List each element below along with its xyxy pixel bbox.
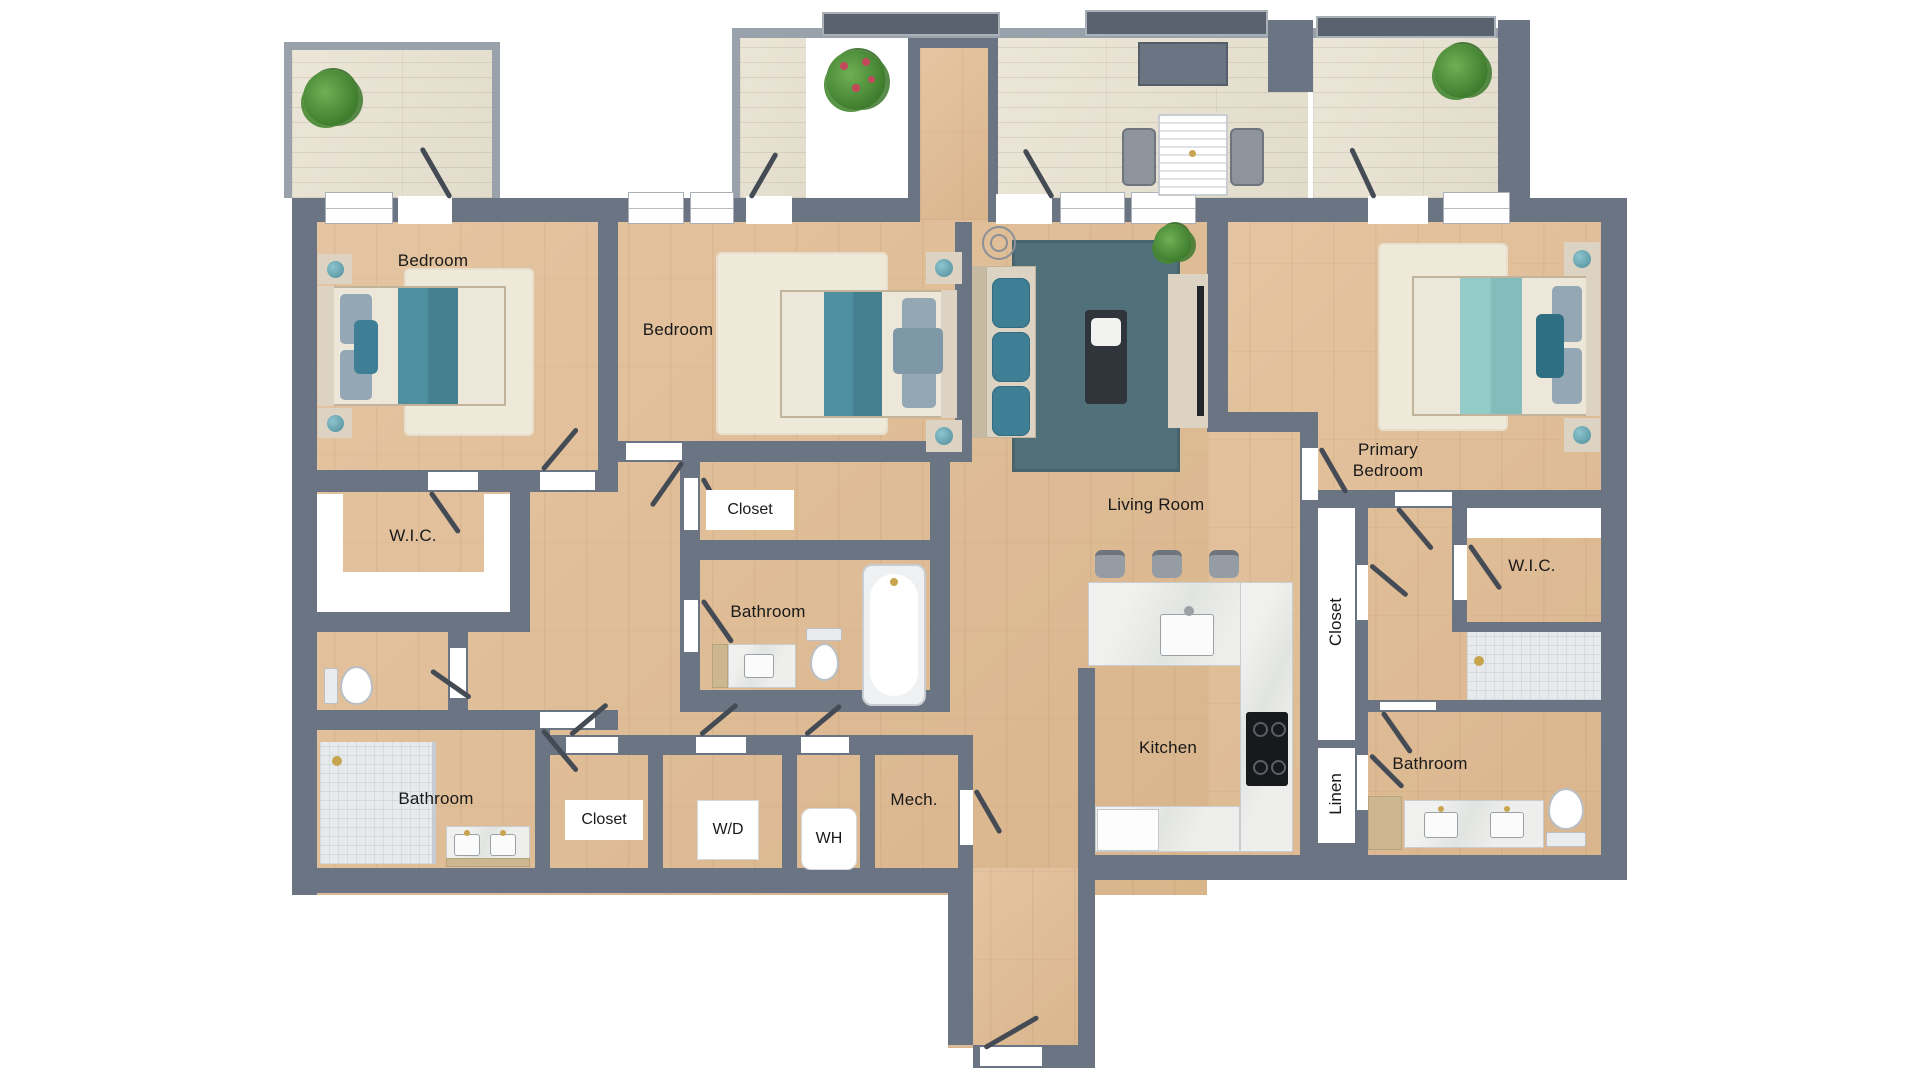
wall-outer-right	[1601, 198, 1627, 880]
water-heater-label: WH	[816, 830, 843, 848]
wall-wic-left-bottom	[317, 612, 510, 632]
wall-primary-bottom	[1318, 490, 1601, 508]
cooktop-burner-icon	[1253, 760, 1268, 775]
room-label-wic-left: W.I.C.	[389, 526, 436, 546]
wall-nook-left	[908, 44, 920, 202]
water-heater-box: WH	[801, 808, 857, 870]
bed-headboard	[1586, 276, 1600, 416]
flower-icon	[862, 58, 870, 66]
balcony-door-opening	[398, 196, 452, 224]
window	[1443, 192, 1510, 224]
flower-icon	[868, 76, 875, 83]
tv	[1197, 286, 1204, 416]
wall-utility-4	[860, 735, 875, 868]
wall-outer-left	[292, 198, 317, 895]
room-label-bathroom-left: Bathroom	[398, 789, 473, 809]
wall-bottom-right	[1095, 855, 1627, 880]
toilet-tank	[324, 668, 338, 704]
bed-blanket	[824, 292, 882, 416]
primary-corridor-opening	[1395, 492, 1452, 506]
window	[1060, 192, 1125, 224]
window	[1131, 192, 1196, 224]
terrace-chair	[1122, 128, 1156, 186]
bedroom1-door-opening	[540, 472, 595, 490]
terrace-arm-door-opening	[746, 196, 792, 224]
floor-terrace-nook	[920, 48, 988, 220]
toilet-tank	[1546, 832, 1586, 847]
window	[325, 192, 393, 224]
flower-icon	[840, 62, 848, 70]
vanity-sink	[1490, 812, 1524, 838]
potted-plant-icon	[303, 70, 359, 126]
bar-stool	[1095, 550, 1125, 578]
bathtub-basin	[870, 574, 918, 696]
wall-closet-mid-bottom	[680, 540, 950, 560]
sofa-back	[972, 266, 986, 438]
bath-mid-door-opening	[684, 600, 698, 652]
vanity-cabinet	[712, 644, 728, 688]
tub-faucet-icon	[890, 578, 898, 586]
toilet-tank	[806, 628, 842, 641]
planter-box	[1085, 10, 1268, 36]
sofa-cushion	[992, 278, 1030, 328]
vanity-sink	[1424, 812, 1458, 838]
balcony-wall-left	[284, 42, 292, 198]
wall-entry-left	[948, 893, 973, 1045]
wic-primary-door-opening	[1454, 545, 1467, 600]
decor-spiral-icon-inner	[990, 234, 1008, 252]
lamp	[1573, 250, 1591, 268]
balcony-wall-top	[284, 42, 500, 50]
room-label-wic-primary: W.I.C.	[1508, 556, 1555, 576]
wic-left-shelf	[484, 494, 510, 574]
wall-wic-primary-bottom	[1452, 622, 1601, 632]
room-label-bathroom-primary: Bathroom	[1392, 754, 1467, 774]
terrace-divider-block	[1268, 20, 1313, 92]
bed-blanket	[398, 288, 458, 404]
wall-living-primary	[1207, 222, 1228, 432]
wall-wic-left-right	[510, 492, 530, 632]
kitchen-faucet-icon	[1184, 606, 1194, 616]
cooktop-burner-icon	[1271, 760, 1286, 775]
coffee-table-tray	[1091, 318, 1121, 346]
faucet-icon	[1438, 806, 1444, 812]
wd-door-opening	[696, 737, 746, 753]
terrace-right-outer-wall	[1498, 20, 1530, 198]
bed-accent-pillow	[354, 320, 378, 374]
vanity-cabinet	[1368, 796, 1402, 850]
vanity-sink	[454, 834, 480, 856]
bed-accent-pillow	[1536, 314, 1564, 378]
wall-entry-right	[1078, 668, 1095, 1045]
wall-utility-2	[648, 735, 663, 868]
faucet-icon	[464, 830, 470, 836]
wall-utility-3	[782, 735, 797, 868]
bed-headboard	[318, 286, 334, 406]
washer-dryer-box: W/D	[697, 800, 759, 860]
lamp	[327, 261, 344, 278]
window	[690, 192, 734, 224]
closet-mid-door-opening	[684, 478, 698, 530]
bar-stool	[1209, 550, 1239, 578]
lamp	[935, 259, 953, 277]
bedroom2-door-opening	[626, 443, 682, 460]
wall-utility-1	[535, 730, 550, 868]
shower-head-icon	[1474, 656, 1484, 666]
room-label-primary-bedroom: Primary Bedroom	[1338, 439, 1438, 482]
terrace-wall-left	[732, 28, 740, 198]
primary-door-opening	[1302, 448, 1318, 500]
closet-bedroom2-label-box: Closet	[706, 490, 794, 530]
balcony-wall-right	[492, 42, 500, 198]
bed-headboard	[941, 290, 957, 418]
closet-hall-door-opening	[566, 737, 618, 753]
vanity-sink	[744, 654, 774, 678]
washer-dryer-label: W/D	[712, 821, 743, 839]
bar-stool	[1152, 550, 1182, 578]
floor-plan: Closet Closet W/D WH Bedroom Bedroom Pri…	[0, 0, 1920, 1080]
wall-closet-mid-right	[930, 462, 950, 712]
primary-terrace-door-opening	[1368, 196, 1428, 224]
bed-blanket	[1460, 278, 1522, 414]
lamp	[935, 427, 953, 445]
toilet	[340, 666, 373, 705]
planter-box	[1316, 16, 1496, 38]
wall-linen-bottom-patch	[1318, 843, 1355, 855]
wic-left-shelf	[317, 572, 510, 612]
room-label-linen: Linen	[1326, 773, 1346, 815]
room-label-closet-primary: Closet	[1326, 598, 1346, 646]
room-label-kitchen: Kitchen	[1139, 738, 1197, 758]
terrace-arm-deck	[740, 36, 806, 198]
refrigerator	[1097, 809, 1159, 851]
wall-shower-primary-bottom	[1452, 700, 1601, 712]
front-door-opening	[980, 1047, 1042, 1066]
closet-primary-door-opening	[1357, 565, 1368, 620]
closet-hall-label-box: Closet	[565, 800, 643, 840]
sofa-cushion	[992, 386, 1030, 436]
kitchen-sink	[1160, 614, 1214, 656]
wic-left-door-opening	[428, 472, 478, 490]
wic-primary-shelf	[1467, 508, 1601, 538]
wall-bed1-bed2	[598, 222, 618, 492]
closet-hall-label: Closet	[581, 811, 626, 829]
terrace-slider-opening	[996, 194, 1052, 224]
faucet-icon	[500, 830, 506, 836]
room-label-bathroom-middle: Bathroom	[730, 602, 805, 622]
lamp	[327, 415, 344, 432]
faucet-icon	[1504, 806, 1510, 812]
vanity-cabinet	[446, 858, 530, 867]
lamp	[1573, 426, 1591, 444]
wall-nook-right	[988, 44, 998, 202]
wall-closet-linen-divider	[1318, 740, 1355, 748]
closet-bedroom2-label: Closet	[727, 501, 772, 519]
planter-box	[822, 12, 1000, 36]
room-label-bedroom-2: Bedroom	[643, 320, 713, 340]
cooktop-burner-icon	[1271, 722, 1286, 737]
bath-primary-door-opening	[1380, 702, 1436, 710]
wh-door-opening	[801, 737, 849, 753]
room-label-bedroom-1: Bedroom	[398, 251, 468, 271]
room-label-mechanical: Mech.	[890, 790, 937, 810]
window	[628, 192, 684, 224]
potted-plant-icon	[1434, 44, 1488, 98]
toilet	[810, 643, 839, 681]
toilet	[1548, 788, 1584, 830]
shower-head-icon	[332, 756, 342, 766]
flower-icon	[852, 84, 860, 92]
terrace-chair	[1230, 128, 1264, 186]
sofa-cushion	[992, 332, 1030, 382]
room-label-living-room: Living Room	[1108, 495, 1205, 515]
terrace-storage-box	[1138, 42, 1228, 86]
bed-throw-pillow	[893, 328, 943, 374]
flowering-plant-icon	[826, 50, 886, 110]
shower-primary-tile	[1467, 632, 1601, 700]
cooktop-burner-icon	[1253, 722, 1268, 737]
mech-door-opening	[960, 790, 973, 845]
wall-bottom-left	[292, 868, 973, 893]
vanity-sink	[490, 834, 516, 856]
potted-plant-icon	[1154, 224, 1192, 262]
linen-door-opening	[1357, 755, 1368, 810]
terrace-table-decor-icon	[1189, 150, 1196, 157]
